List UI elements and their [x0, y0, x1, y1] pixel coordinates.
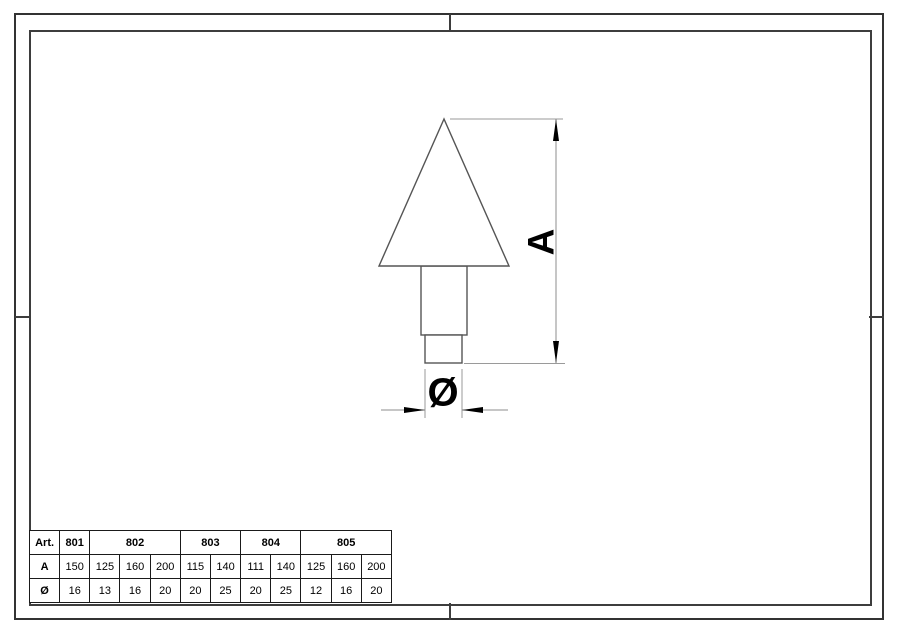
- table-row-a-values: A 150 125 160 200 115 140 111 140 125 16…: [30, 555, 392, 579]
- shaft-rectangle: [421, 266, 467, 335]
- arrowhead-up-icon: [553, 119, 559, 141]
- a-value-cell: 111: [241, 555, 271, 579]
- article-cell: 804: [241, 531, 301, 555]
- a-value-cell: 125: [90, 555, 120, 579]
- a-value-cell: 140: [210, 555, 240, 579]
- diameter-value-cell: 25: [210, 579, 240, 603]
- diameter-value-cell: 12: [301, 579, 331, 603]
- drawing-sheet: A Ø Art. 801 802 803 804 805 A 150 125: [0, 0, 900, 636]
- diameter-value-cell: 20: [241, 579, 271, 603]
- diameter-value-cell: 16: [120, 579, 150, 603]
- table-row-diameter-values: Ø 16 13 16 20 20 25 20 25 12 16 20: [30, 579, 392, 603]
- row-header-diameter: Ø: [30, 579, 60, 603]
- diameter-value-cell: 20: [180, 579, 210, 603]
- arrowhead-left-icon: [462, 407, 483, 413]
- a-value-cell: 200: [361, 555, 391, 579]
- diameter-value-cell: 16: [331, 579, 361, 603]
- diameter-value-cell: 20: [150, 579, 180, 603]
- article-cell: 805: [301, 531, 392, 555]
- diameter-value-cell: 13: [90, 579, 120, 603]
- diameter-value-cell: 25: [271, 579, 301, 603]
- spec-table: Art. 801 802 803 804 805 A 150 125 160 2…: [29, 530, 392, 603]
- table-row-article: Art. 801 802 803 804 805: [30, 531, 392, 555]
- diameter-value-cell: 16: [60, 579, 90, 603]
- article-cell: 801: [60, 531, 90, 555]
- a-value-cell: 125: [301, 555, 331, 579]
- article-cell: 803: [180, 531, 240, 555]
- a-value-cell: 200: [150, 555, 180, 579]
- spec-table-container: Art. 801 802 803 804 805 A 150 125 160 2…: [29, 530, 392, 603]
- a-value-cell: 160: [331, 555, 361, 579]
- diameter-value-cell: 20: [361, 579, 391, 603]
- row-header-art: Art.: [30, 531, 60, 555]
- article-cell: 802: [90, 531, 180, 555]
- dimension-label-diameter: Ø: [427, 371, 458, 415]
- a-value-cell: 150: [60, 555, 90, 579]
- a-value-cell: 160: [120, 555, 150, 579]
- tip-rectangle: [425, 335, 462, 363]
- arrowhead-down-icon: [553, 341, 559, 363]
- a-value-cell: 140: [271, 555, 301, 579]
- row-header-a: A: [30, 555, 60, 579]
- a-value-cell: 115: [180, 555, 210, 579]
- dimension-label-a: A: [521, 229, 562, 256]
- cone-triangle: [379, 119, 509, 266]
- arrowhead-right-icon: [404, 407, 425, 413]
